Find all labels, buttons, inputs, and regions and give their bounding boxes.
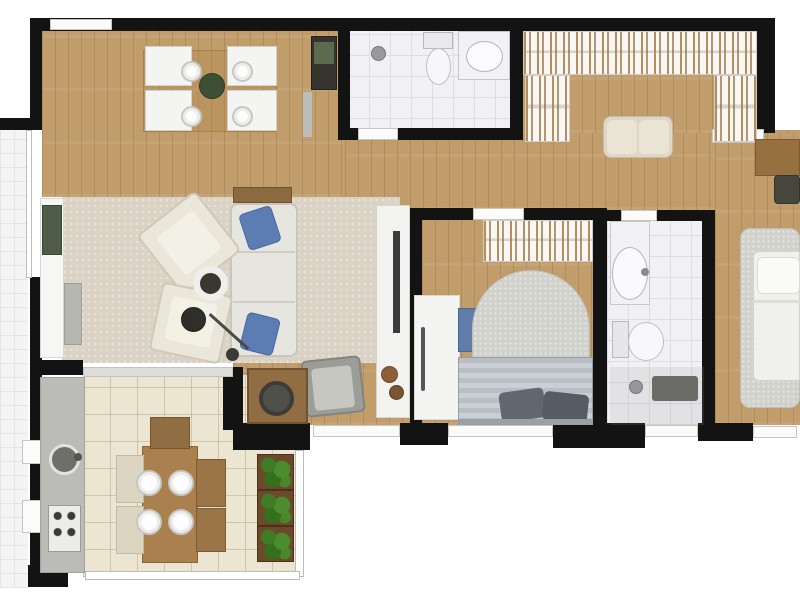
dining-plate-4 xyxy=(232,106,253,127)
terrace-chair-3 xyxy=(196,459,226,507)
toilet2-tank xyxy=(612,321,629,358)
master-blanket-fold xyxy=(753,300,800,303)
wall-kitchen-top xyxy=(30,360,83,375)
master-desk xyxy=(755,139,800,176)
wall-top xyxy=(30,18,775,31)
decor-sphere-a xyxy=(381,366,398,383)
round-side-table xyxy=(193,266,228,301)
window-bedroom2-bottom xyxy=(448,425,553,437)
closet-handle xyxy=(421,327,425,391)
floor-lamp-head xyxy=(226,348,239,361)
toilet1-tank xyxy=(423,32,453,49)
dining-runner xyxy=(303,92,312,137)
dining-plate-2 xyxy=(232,61,253,82)
window-living-bottom xyxy=(313,425,400,437)
planter-1 xyxy=(257,454,294,490)
planter-3 xyxy=(257,526,294,562)
window-master-bottom xyxy=(753,426,797,438)
door-bath1 xyxy=(358,128,398,140)
dining-centerpiece-plant xyxy=(199,73,225,99)
window-terrace-left-b xyxy=(22,500,42,533)
apartment-floor-plan xyxy=(0,0,800,600)
kitchen-stove xyxy=(48,505,81,552)
window-dining-top xyxy=(50,19,112,30)
toilet2-bowl xyxy=(628,322,664,361)
bedroom2-bed-base xyxy=(458,419,593,425)
sink1-basin xyxy=(466,41,503,72)
decor-sphere-b xyxy=(389,385,404,400)
terrace-plate-4 xyxy=(168,509,194,535)
wall-bed2-right xyxy=(593,208,607,425)
closet-wardrobe-left xyxy=(525,75,570,142)
kitchen-bar-counter xyxy=(83,367,233,377)
kitchen-faucet xyxy=(74,453,82,461)
terrace-plate-3 xyxy=(136,509,162,535)
wall-bottom-a xyxy=(400,423,448,445)
door-bath2 xyxy=(621,210,657,221)
terrace-plate-2 xyxy=(168,470,194,496)
closet-wardrobe-right xyxy=(714,75,757,142)
bedroom2-wardrobe xyxy=(483,220,593,262)
sideboard-decor xyxy=(314,42,334,64)
toilet1-bowl xyxy=(426,48,451,85)
wall-bottom-c xyxy=(698,423,753,441)
dining-plate-1 xyxy=(181,61,202,82)
sofa-console-table xyxy=(233,187,292,203)
wall-bottom-b xyxy=(553,423,645,448)
terrace-plate-1 xyxy=(136,470,162,496)
glass-terrace-bottom xyxy=(85,571,300,580)
dark-tray xyxy=(181,307,206,332)
shower2-mat xyxy=(652,376,698,401)
planter-2 xyxy=(257,490,294,526)
sofa-seam-a xyxy=(233,251,295,253)
ottoman-cushion-a xyxy=(607,120,637,154)
wall-bath1-bottom-b xyxy=(396,128,512,140)
fire-bowl xyxy=(259,381,294,416)
window-terrace-left-a xyxy=(22,440,42,464)
terrace-bench xyxy=(150,417,190,449)
glass-living-left xyxy=(26,130,32,278)
reading-armchair-seat xyxy=(311,365,355,411)
wall-bath1-bottom-a xyxy=(338,128,360,140)
master-pillow xyxy=(757,257,800,294)
wall-right-upper xyxy=(757,18,775,133)
door-bed2 xyxy=(473,208,524,220)
sofa-seam-b xyxy=(233,301,295,303)
terrace-chair-4 xyxy=(196,508,226,552)
window-bath2-bottom xyxy=(645,425,698,437)
terrace-dining-table xyxy=(142,446,198,563)
wall-bottom-living xyxy=(233,423,310,450)
ottoman-cushion-b xyxy=(639,120,669,154)
wall-left-upper xyxy=(30,18,42,130)
bedroom2-pillow-a xyxy=(498,387,547,423)
gray-shelf xyxy=(64,283,82,345)
shower2-control xyxy=(629,380,643,394)
wall-bed2-top-a xyxy=(410,208,475,220)
bath2-faucet xyxy=(641,268,649,276)
wall-bath1-left xyxy=(338,25,350,140)
console-art xyxy=(42,205,62,255)
closet-wardrobe-top xyxy=(523,31,757,75)
glass-terrace-right xyxy=(295,450,304,577)
dining-plate-3 xyxy=(181,106,202,127)
wall-left-notch xyxy=(0,118,42,130)
shower1-head xyxy=(371,46,386,61)
tv-screen xyxy=(393,231,400,333)
master-chair xyxy=(774,175,800,204)
wall-bath1-right xyxy=(510,18,523,140)
